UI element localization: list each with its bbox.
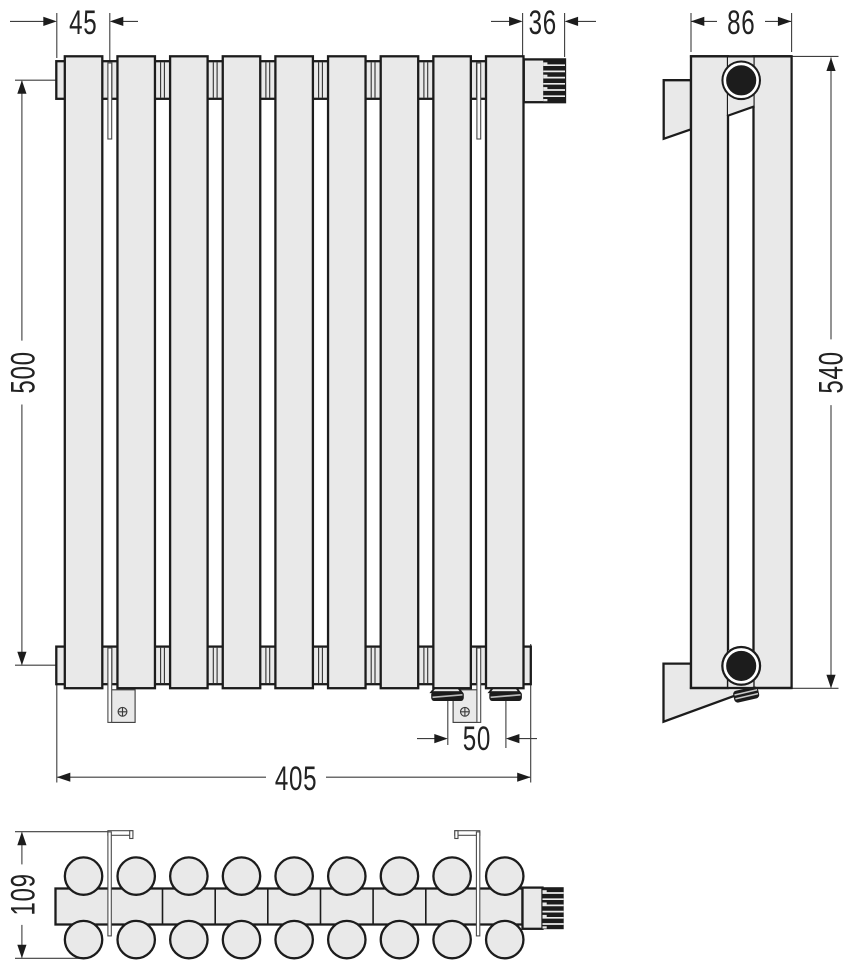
svg-text:45: 45 <box>69 4 97 42</box>
svg-text:50: 50 <box>463 720 491 758</box>
svg-text:405: 405 <box>275 760 317 798</box>
svg-text:500: 500 <box>4 351 42 393</box>
svg-text:109: 109 <box>4 873 42 915</box>
svg-text:540: 540 <box>812 351 850 393</box>
svg-text:86: 86 <box>727 4 755 42</box>
svg-text:36: 36 <box>529 4 557 42</box>
